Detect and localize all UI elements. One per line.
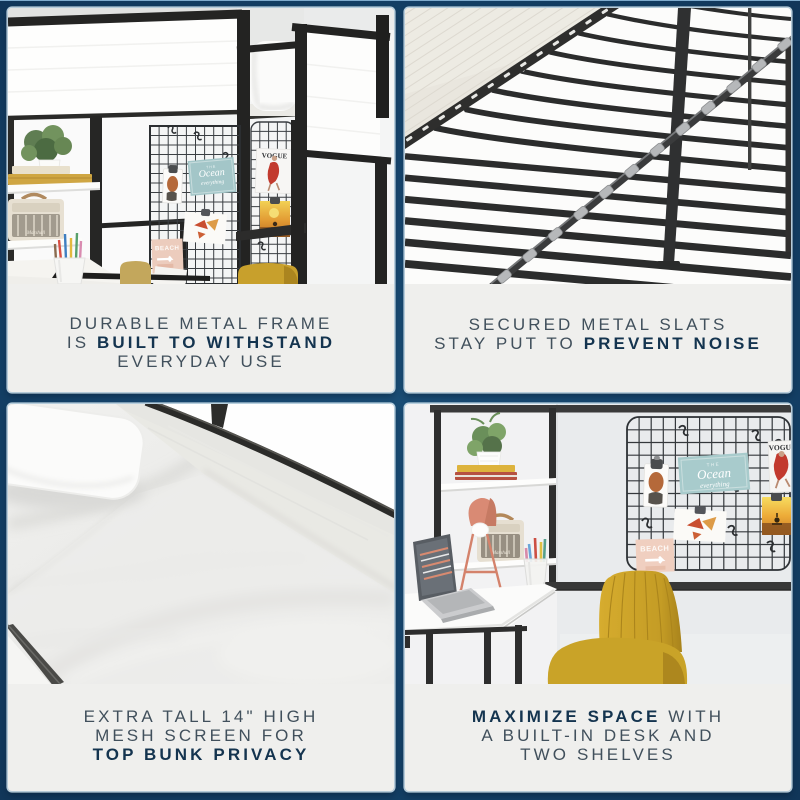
svg-text:VOGUE: VOGUE xyxy=(769,442,791,452)
svg-text:Marshall: Marshall xyxy=(26,231,46,236)
svg-text:BEACH: BEACH xyxy=(155,245,180,253)
svg-text:Marshall: Marshall xyxy=(491,551,511,556)
svg-text:BEACH: BEACH xyxy=(640,543,669,553)
